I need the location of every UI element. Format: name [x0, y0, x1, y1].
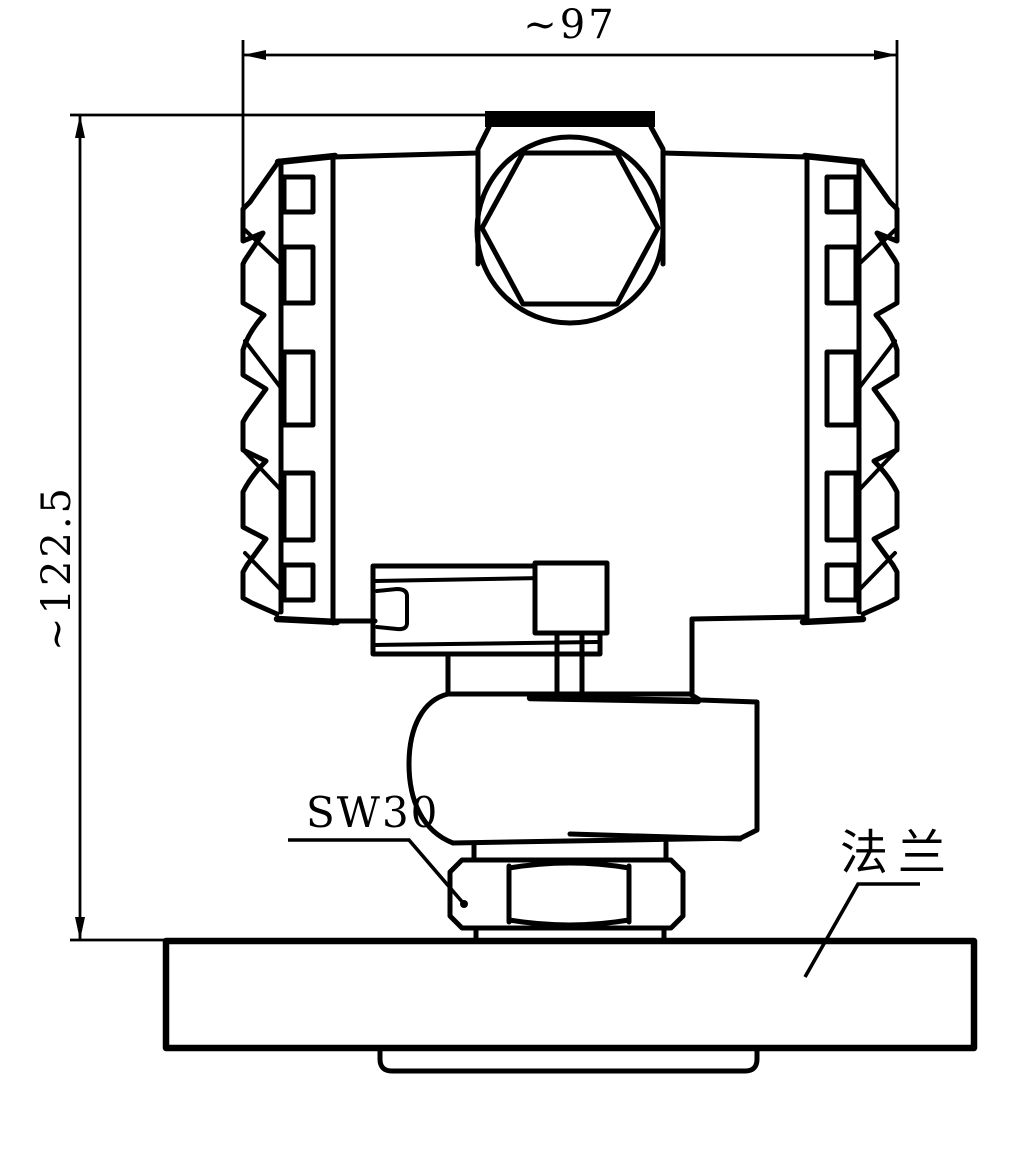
cover-band-top: [278, 156, 335, 162]
flange-annotation: 法兰: [805, 825, 956, 977]
flange-boss: [380, 1048, 757, 1071]
ribbed-cover-left: [243, 156, 337, 622]
housing-bottom-edge-right: [692, 617, 807, 619]
wrench-size-label: SW30: [306, 788, 439, 837]
cover-rib-slot: [284, 177, 313, 212]
nut-outline: [450, 860, 683, 928]
display-connector: [377, 589, 407, 629]
plug-top-bar: [485, 111, 655, 127]
process-shoulder-top: [530, 698, 698, 701]
cover-outer-profile: [243, 161, 279, 614]
flange-leader-line: [805, 884, 920, 977]
drawing-canvas: ~97 ~122.5: [0, 0, 1036, 1165]
height-dimension-label: ~122.5: [34, 485, 80, 651]
mounting-flange: [166, 941, 974, 1071]
ribbed-cover-right: [803, 156, 897, 622]
flange-label: 法兰: [840, 825, 956, 881]
cover-rib-slot: [284, 565, 313, 600]
cover-band-bottom: [277, 619, 337, 622]
technical-drawing: ~97 ~122.5: [0, 0, 1036, 1165]
arrowhead-left: [243, 50, 266, 60]
cover-rib-slot: [284, 473, 313, 540]
hex-nut: [450, 860, 683, 941]
housing-top-edge-left: [333, 153, 478, 157]
cover-rib-slot: [284, 352, 313, 425]
cover-cone-line: [245, 553, 281, 590]
arrowhead-top: [75, 115, 85, 138]
cover-rib-slot: [284, 247, 313, 303]
process-connection: [409, 694, 757, 860]
display-module: [373, 563, 607, 694]
junction-block: [535, 563, 607, 633]
plug-circle: [477, 137, 663, 323]
arrowhead-right: [874, 50, 897, 60]
arrowhead-bottom: [75, 917, 85, 940]
hex-vent-plug: [477, 111, 663, 323]
display-inner-line-bottom: [376, 642, 597, 645]
process-body-outline: [409, 694, 757, 843]
width-dimension-label: ~97: [523, 2, 616, 48]
flange-plate: [166, 941, 974, 1048]
sw30-leader-dot: [460, 900, 468, 908]
housing-top-edge-right: [663, 153, 807, 157]
plug-hexagon: [482, 153, 658, 304]
sw30-leader-line: [288, 840, 464, 904]
